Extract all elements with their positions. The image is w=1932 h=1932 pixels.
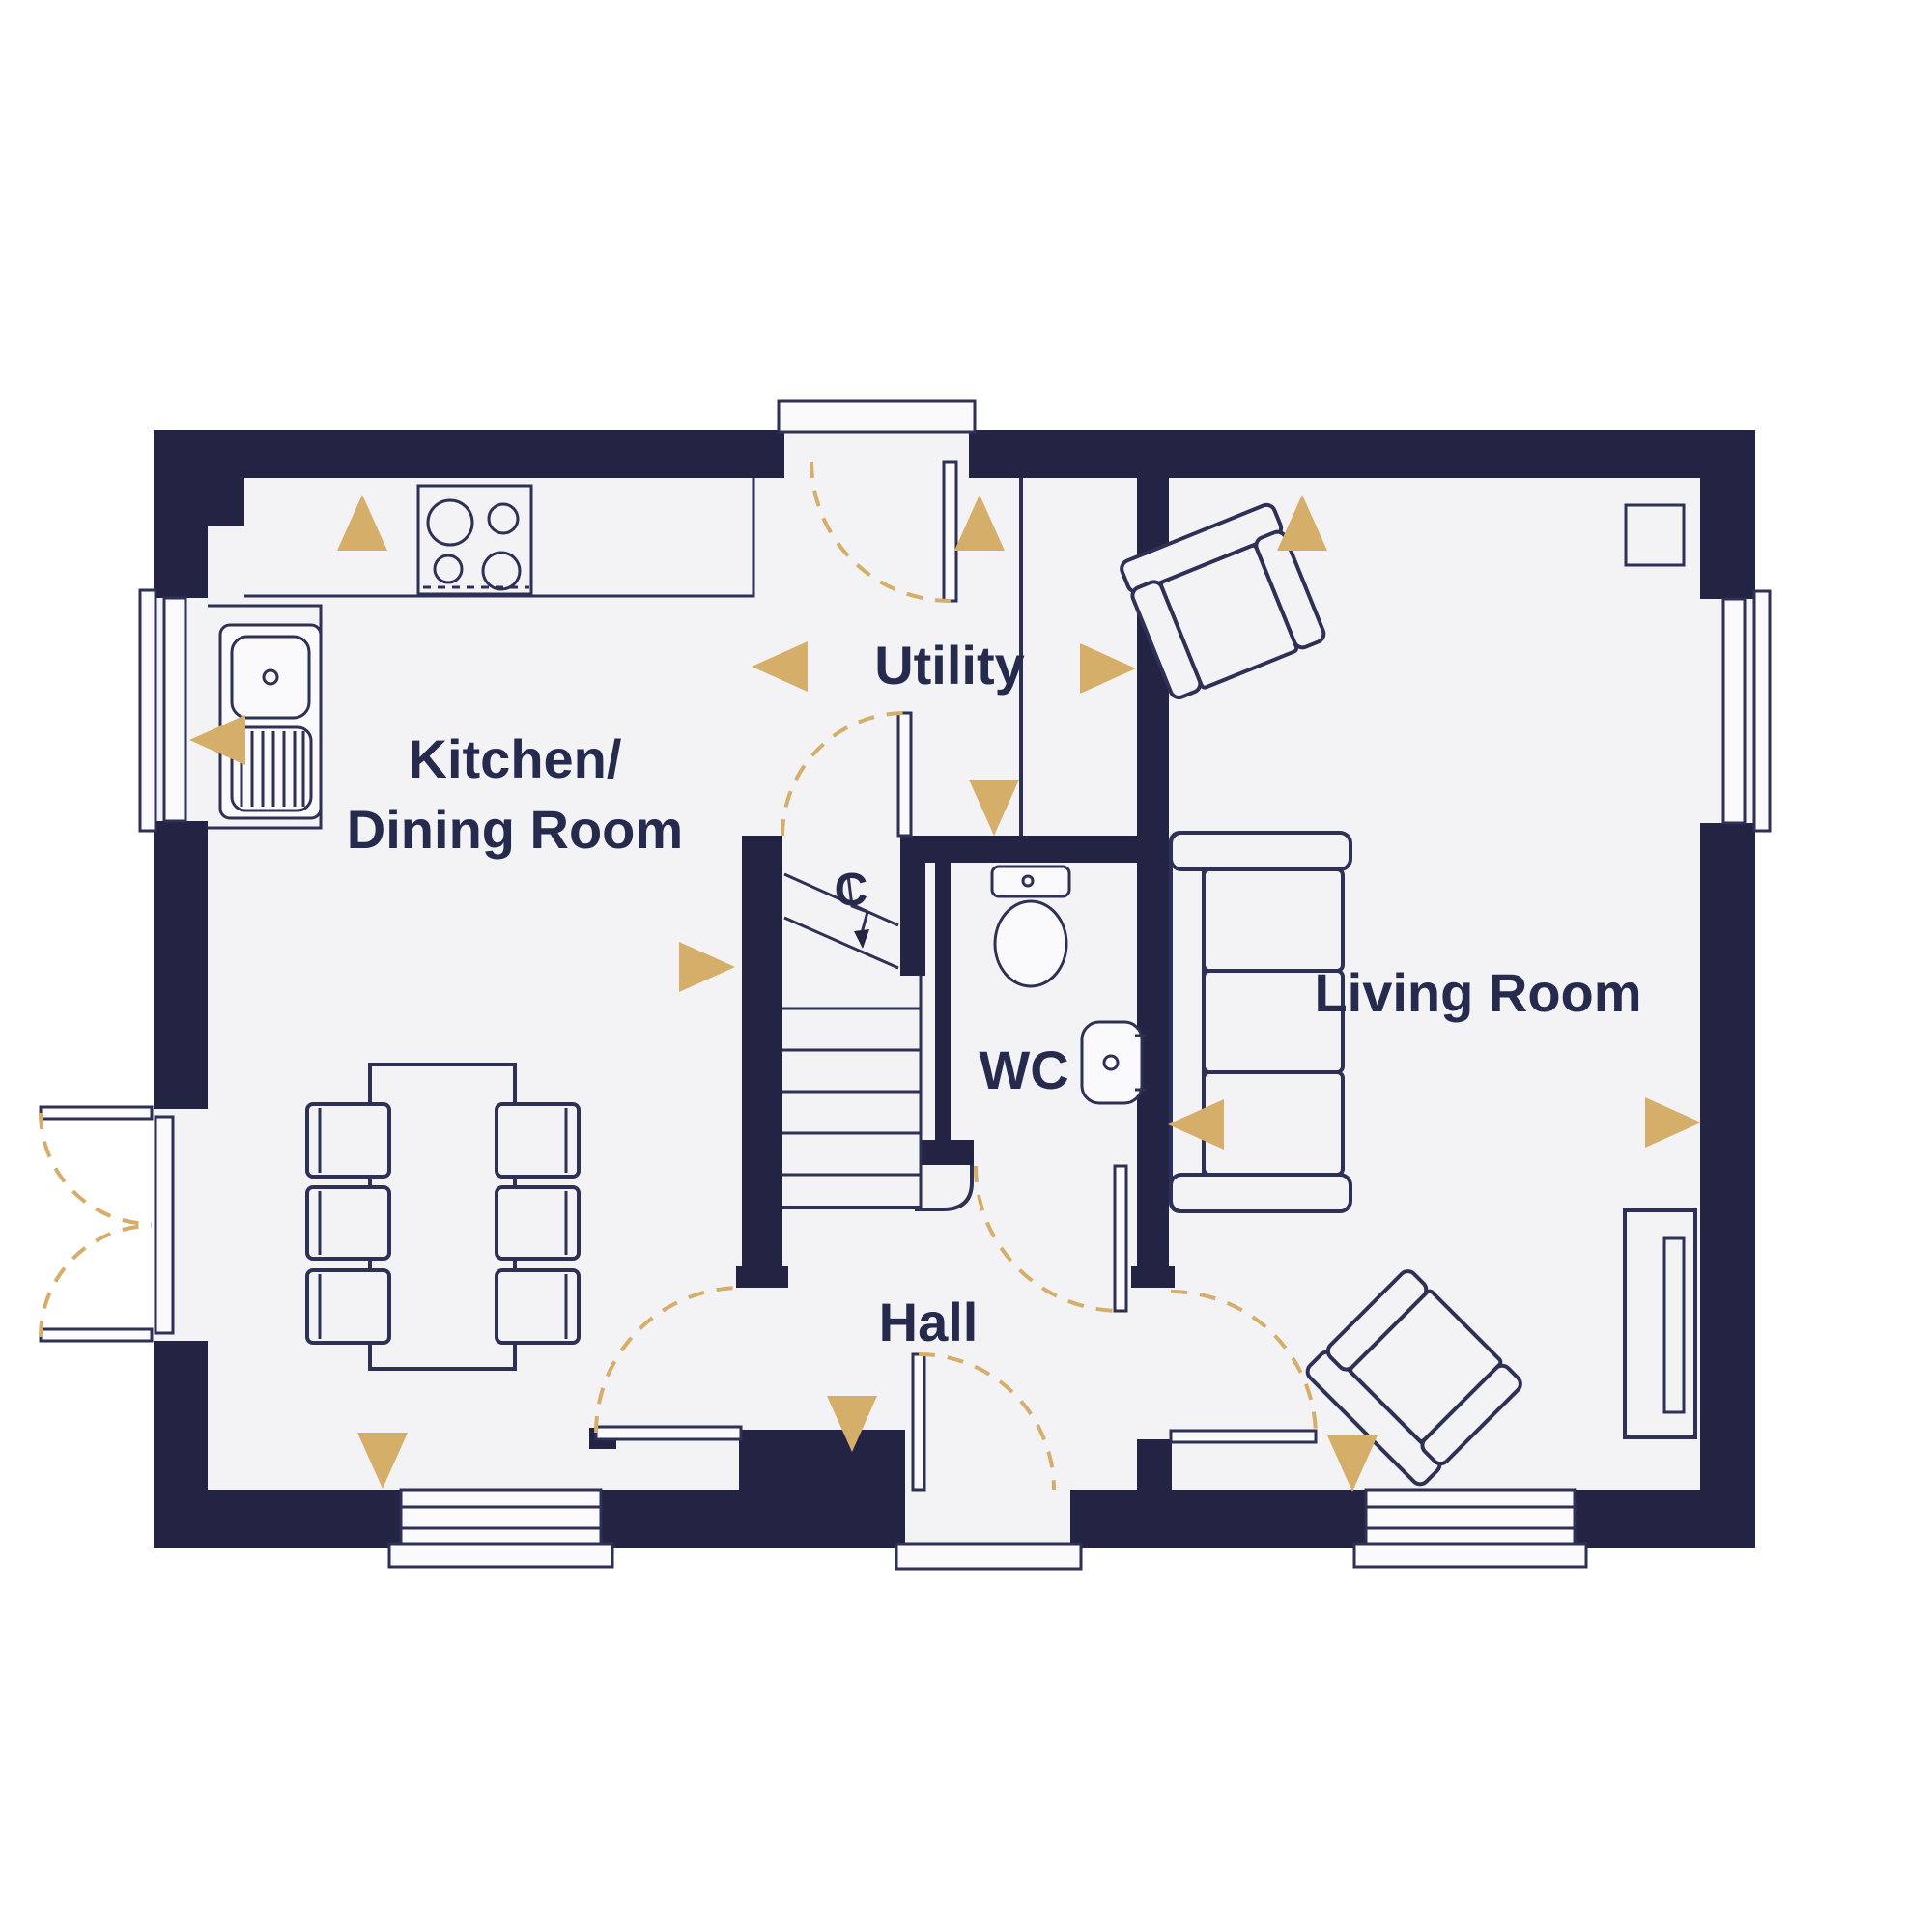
- french-doors: [41, 1107, 208, 1341]
- dining-chair: [497, 1270, 579, 1343]
- label-kitchen: Kitchen/: [409, 728, 622, 789]
- living-side-window: [1700, 591, 1770, 831]
- kitchen-window: [140, 590, 208, 831]
- floor-plan-page: { "colors": { "wall": "#232343", "line":…: [0, 0, 1932, 1932]
- tv-unit-icon: [1625, 1210, 1695, 1437]
- dining-chair: [307, 1187, 389, 1259]
- dining-table: [370, 1065, 515, 1369]
- label-cupboard: C: [835, 865, 868, 916]
- label-hall: Hall: [879, 1292, 979, 1352]
- label-dining: Dining Room: [347, 799, 683, 860]
- understairs-wall: [739, 1430, 905, 1548]
- stairs-wall: [742, 836, 782, 1288]
- dining-chair: [497, 1187, 579, 1259]
- label-living-room: Living Room: [1314, 962, 1641, 1023]
- basin-icon: [1082, 1022, 1146, 1103]
- toilet-icon: [992, 867, 1069, 986]
- dining-chair: [307, 1270, 389, 1343]
- dining-chair: [497, 1104, 579, 1177]
- floor-plan: Kitchen/ Dining Room Utility Living Room…: [0, 0, 1932, 1932]
- dining-chair: [307, 1104, 389, 1177]
- label-utility: Utility: [874, 635, 1025, 696]
- label-wc: WC: [979, 1039, 1068, 1100]
- wc-wall: [900, 836, 1169, 863]
- dining-furniture: [307, 1065, 579, 1369]
- living-front-window: [1354, 1490, 1586, 1567]
- dining-window: [389, 1490, 612, 1567]
